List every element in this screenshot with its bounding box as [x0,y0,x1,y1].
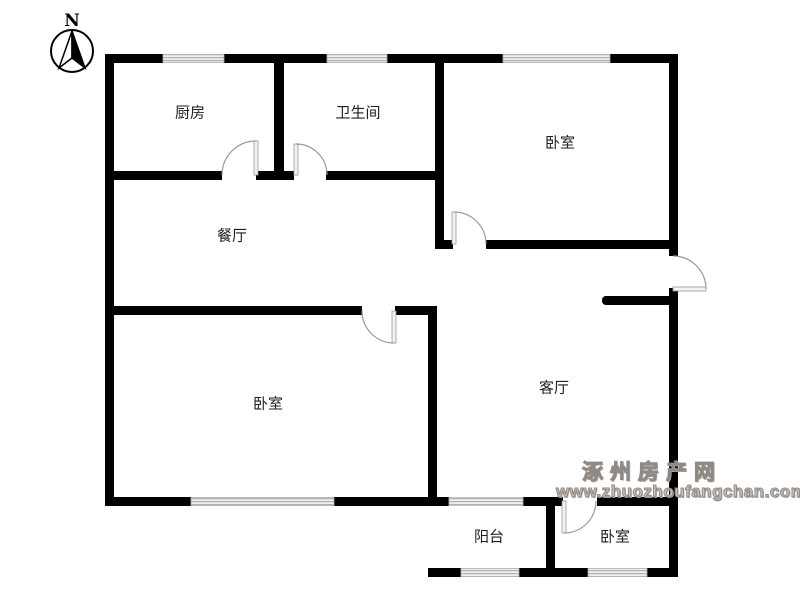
door-leaf-entry [673,287,706,291]
wall-bathroom-south [326,171,442,180]
room-label-living: 客厅 [539,380,569,397]
wall-bottom-left-1 [105,497,191,506]
door-leaf-bedroom-left [392,311,396,343]
window-bathroom [327,55,387,63]
room-labels: 厨房 卫生间 卧室 餐厅 卧室 客厅 阳台 卧室 [175,105,630,546]
balcony-sliding-door [449,498,523,506]
floorplan-image: N 厨房 卫生间 卧室 餐厅 卧室 客厅 阳台 卧室 涿州房产网 www.zhu… [0,0,800,600]
door-arc-bedroom-left [362,311,394,343]
window-bedroom-top [503,55,610,63]
wall-left-outer [105,54,114,506]
window-bedroom-left [191,498,334,506]
wall-kitchen-south-1 [105,171,222,180]
door-leaf-bathroom [294,144,298,175]
wall-entry-stub [602,296,678,305]
wall-dining-south-1 [105,306,362,315]
wall-kitchen-bathroom-divider [274,54,284,180]
room-label-balcony: 阳台 [474,529,504,546]
wall-balcony-south-1 [428,568,461,577]
wall-balcony-bedroom-divider [546,497,555,577]
door-arc-kitchen [222,141,256,175]
wall-bedroom-top-west [435,54,444,249]
door-arc-bedroom-bottom [564,501,596,533]
compass-needle-east [72,31,85,68]
door-leaf-bedroom-top [452,212,456,244]
wall-right-outer-upper [669,54,678,256]
wall-top-4 [610,54,678,63]
wall-right-outer-lower [669,288,678,577]
door-leaf-bedroom-bottom [562,501,566,533]
room-label-bedroom-left: 卧室 [253,396,283,413]
room-label-bedroom-top: 卧室 [545,135,575,152]
window-bedroom-bottom [588,569,647,577]
wall-living-west [428,306,437,506]
door-arc-bedroom-top [454,212,486,244]
room-label-bathroom: 卫生间 [335,105,380,122]
compass-north-label: N [64,11,80,31]
door-arc-entry [673,256,706,289]
wall-top-3 [387,54,503,63]
window-kitchen [163,55,224,63]
window-balcony [461,569,519,577]
compass-needle-west [59,31,72,68]
room-label-bedroom-bottom: 卧室 [600,529,630,546]
door-leaf-kitchen [254,141,258,175]
watermark-url: www.zhuozhoufangchan.com [556,482,800,502]
floorplan-drawing: N 厨房 卫生间 卧室 餐厅 卧室 客厅 阳台 卧室 [0,0,800,600]
door-arc-bathroom [296,144,327,175]
compass: N [51,11,93,72]
room-label-kitchen: 厨房 [175,105,205,122]
wall-bedroom-top-south-2 [486,240,678,249]
room-label-dining: 餐厅 [217,228,247,245]
